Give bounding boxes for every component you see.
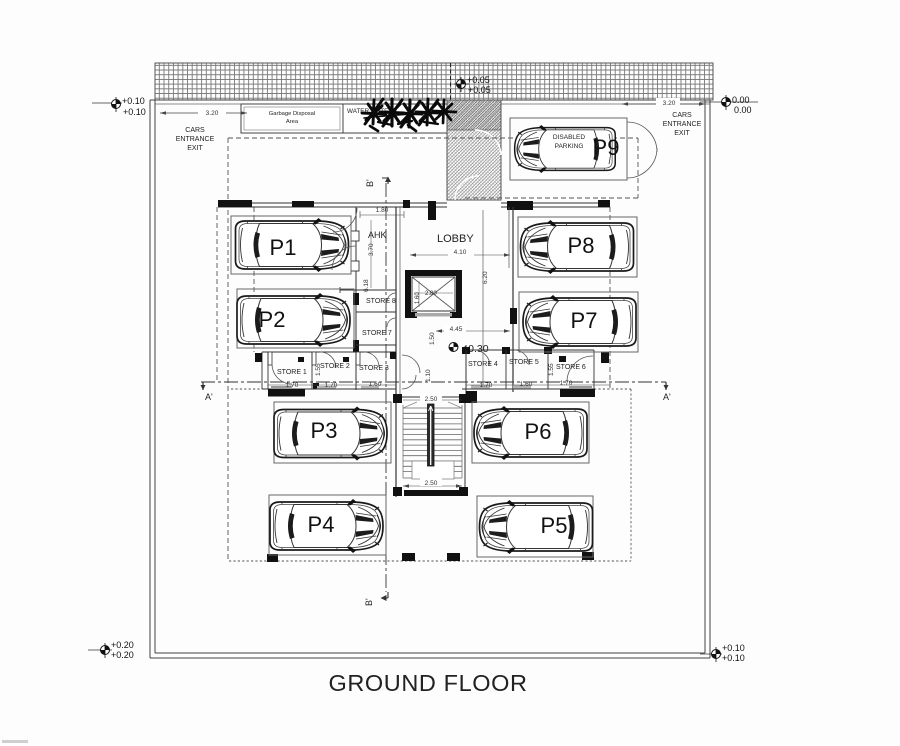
svg-text:ENTRANCE: ENTRANCE: [663, 121, 702, 128]
svg-text:STORE 8: STORE 8: [366, 298, 396, 305]
svg-text:1.55: 1.55: [315, 363, 322, 376]
svg-text:2.50: 2.50: [425, 396, 438, 403]
svg-text:CARS: CARS: [185, 127, 205, 134]
svg-text:Area: Area: [286, 119, 299, 125]
svg-text:EXIT: EXIT: [187, 145, 203, 152]
svg-text:+0.20: +0.20: [111, 650, 134, 660]
svg-text:P8: P8: [568, 233, 595, 258]
svg-text:STORE 7: STORE 7: [362, 330, 392, 337]
svg-text:A': A': [663, 392, 671, 402]
svg-text:3.20: 3.20: [663, 100, 676, 107]
svg-text:P7: P7: [571, 308, 598, 333]
svg-text:+0.10: +0.10: [123, 107, 146, 117]
svg-text:1.60: 1.60: [415, 292, 421, 304]
svg-text:+0.20: +0.20: [111, 640, 134, 650]
svg-text:2.50: 2.50: [425, 480, 438, 487]
svg-text:6.20: 6.20: [482, 271, 489, 284]
svg-text:4.45: 4.45: [450, 326, 463, 333]
svg-text:ENTRANCE: ENTRANCE: [176, 136, 215, 143]
svg-text:+0.10: +0.10: [722, 653, 745, 663]
svg-text:P2: P2: [259, 307, 286, 332]
svg-text:0.00: 0.00: [734, 105, 752, 115]
svg-text:CARS: CARS: [672, 112, 692, 119]
svg-text:1.70: 1.70: [560, 380, 573, 387]
svg-text:STORE 4: STORE 4: [468, 361, 498, 368]
svg-text:B': B': [364, 598, 374, 606]
svg-text:1.10: 1.10: [425, 369, 432, 382]
svg-text:1.55: 1.55: [548, 363, 555, 376]
svg-text:+0.10: +0.10: [722, 643, 745, 653]
svg-text:Garbage Disposal: Garbage Disposal: [269, 111, 315, 117]
svg-text:+0.05: +0.05: [467, 75, 490, 85]
svg-text:1.50: 1.50: [429, 332, 436, 345]
svg-text:2.80: 2.80: [425, 291, 437, 297]
svg-text:P1: P1: [270, 235, 297, 260]
svg-text:STORE 5: STORE 5: [509, 359, 539, 366]
svg-text:P4: P4: [308, 512, 335, 537]
svg-text:1.60: 1.60: [369, 381, 382, 388]
svg-text:+0.05: +0.05: [468, 85, 491, 95]
svg-text:1.60: 1.60: [520, 381, 533, 388]
svg-text:GROUND FLOOR: GROUND FLOOR: [328, 670, 527, 696]
svg-text:DISABLED: DISABLED: [553, 134, 585, 141]
svg-text:A': A': [205, 392, 213, 402]
svg-text:1.80: 1.80: [376, 207, 389, 214]
svg-text:1.70: 1.70: [325, 382, 338, 389]
svg-text:P6: P6: [525, 419, 552, 444]
svg-text:P3: P3: [311, 418, 338, 443]
svg-text:B': B': [365, 179, 375, 187]
svg-text:P5: P5: [541, 513, 568, 538]
svg-text:1.70: 1.70: [480, 382, 493, 389]
svg-text:STORE 1: STORE 1: [277, 369, 307, 376]
svg-text:PARKING: PARKING: [555, 143, 584, 150]
svg-text:0.00: 0.00: [732, 95, 750, 105]
svg-text:STORE 3: STORE 3: [359, 365, 389, 372]
svg-text:LOBBY: LOBBY: [437, 233, 474, 245]
svg-text:3.70: 3.70: [368, 243, 375, 256]
svg-text:P9: P9: [593, 135, 620, 160]
svg-text:EXIT: EXIT: [674, 130, 690, 137]
svg-text:4.10: 4.10: [454, 249, 467, 256]
svg-text:1.70: 1.70: [286, 382, 299, 389]
svg-text:3.20: 3.20: [206, 110, 219, 117]
svg-text:STORE 6: STORE 6: [556, 364, 586, 371]
svg-text:STORE 2: STORE 2: [320, 363, 350, 370]
svg-text:+0.10: +0.10: [122, 96, 145, 106]
